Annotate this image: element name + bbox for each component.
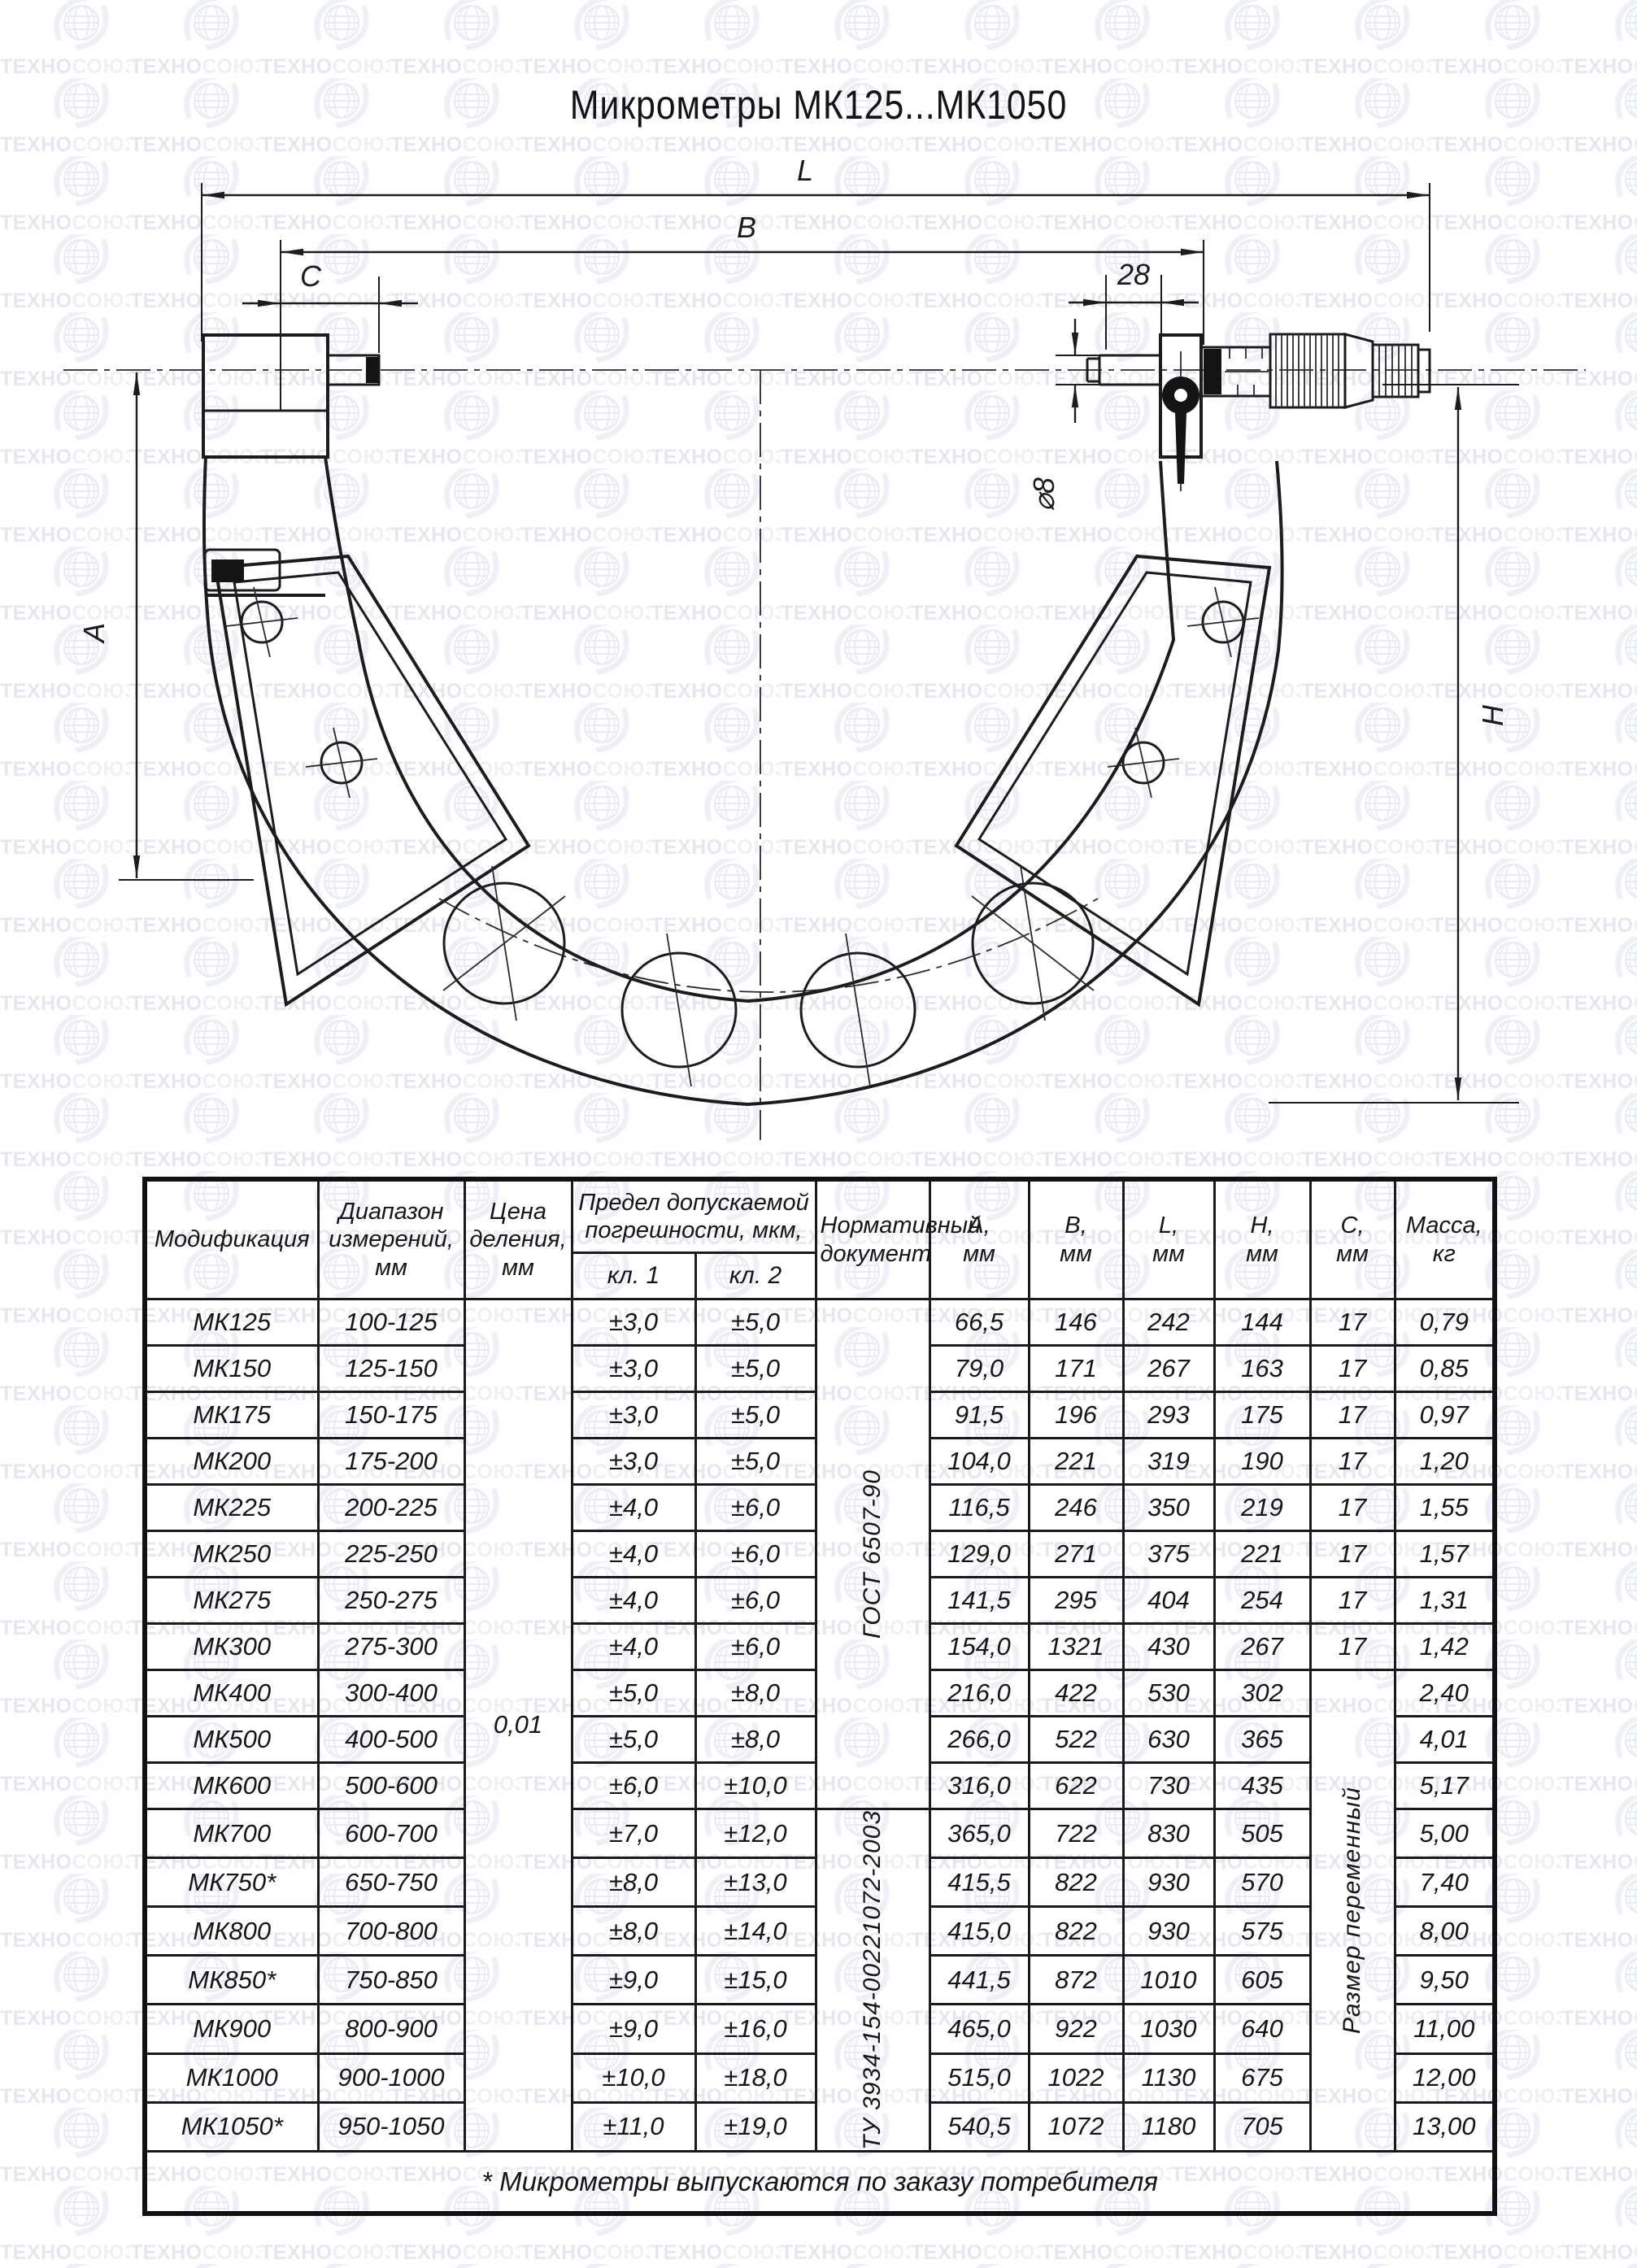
cell-range: 125-150 [318, 1346, 464, 1392]
header-range: Диапазон измерений, мм [318, 1179, 464, 1299]
cell-a: 91,5 [930, 1392, 1029, 1439]
header-c: С, мм [1310, 1179, 1395, 1299]
anvil [203, 335, 379, 457]
cell-a: 116,5 [930, 1485, 1029, 1531]
micrometer-head [1087, 334, 1430, 498]
spec-table-body: МК125100-1250,01±3,0±5,0ГОСТ 6507-9066,5… [145, 1299, 1495, 2152]
dim-label-H: H [1476, 704, 1509, 726]
cell-range: 750-850 [318, 1956, 464, 2005]
cell-kl1: ±3,0 [572, 1439, 695, 1485]
cell-b: 246 [1029, 1485, 1123, 1531]
cell-kl1: ±5,0 [572, 1717, 695, 1763]
cell-kl1: ±10,0 [572, 2053, 695, 2102]
cell-h: 144 [1214, 1299, 1310, 1346]
spec-table-header: Модификация Диапазон измерений, мм Цена … [145, 1179, 1495, 1299]
cell-model: МК850* [145, 1956, 318, 2005]
cell-kl1: ±3,0 [572, 1299, 695, 1346]
cell-b: 622 [1029, 1763, 1123, 1809]
cell-mass: 1,57 [1395, 1531, 1495, 1578]
cell-range: 600-700 [318, 1809, 464, 1858]
header-b: В, мм [1029, 1179, 1123, 1299]
cell-l: 1180 [1123, 2102, 1214, 2151]
cell-b: 171 [1029, 1346, 1123, 1392]
table-row: МК700600-700±7,0±12,0ТУ 3934-154-0022107… [145, 1809, 1495, 1858]
cell-l: 830 [1123, 1809, 1214, 1858]
cell-a: 266,0 [930, 1717, 1029, 1763]
cell-a: 104,0 [930, 1439, 1029, 1485]
cell-l: 375 [1123, 1531, 1214, 1578]
cell-h: 365 [1214, 1717, 1310, 1763]
cell-c: 17 [1310, 1531, 1395, 1578]
cell-a: 415,5 [930, 1858, 1029, 1907]
cell-kl1: ±5,0 [572, 1670, 695, 1717]
cell-kl1: ±11,0 [572, 2102, 695, 2151]
cell-mass: 0,79 [1395, 1299, 1495, 1346]
screw-icon [306, 728, 377, 798]
cell-mass: 1,55 [1395, 1485, 1495, 1531]
table-row: МК125100-1250,01±3,0±5,0ГОСТ 6507-9066,5… [145, 1299, 1495, 1346]
cell-mass: 2,40 [1395, 1670, 1495, 1717]
cell-kl1: ±7,0 [572, 1809, 695, 1858]
header-division: Цена деления, мм [464, 1179, 572, 1299]
cell-doc-tu: ТУ 3934-154-00221072-2003 [816, 1809, 930, 2152]
table-footnote: * Микрометры выпускаются по заказу потре… [145, 2151, 1495, 2214]
cell-model: МК200 [145, 1439, 318, 1485]
cell-mass: 1,31 [1395, 1578, 1495, 1624]
cell-c: 17 [1310, 1299, 1395, 1346]
cell-l: 242 [1123, 1299, 1214, 1346]
cell-kl2: ±5,0 [695, 1346, 816, 1392]
cell-kl2: ±13,0 [695, 1858, 816, 1907]
cell-l: 1030 [1123, 2005, 1214, 2053]
cell-l: 1130 [1123, 2053, 1214, 2102]
page-title: Микрометры МК125...МК1050 [115, 81, 1522, 128]
cell-kl1: ±3,0 [572, 1392, 695, 1439]
header-h: Н, мм [1214, 1179, 1310, 1299]
cell-model: МК250 [145, 1531, 318, 1578]
cell-mass: 12,00 [1395, 2053, 1495, 2102]
cell-range: 500-600 [318, 1763, 464, 1809]
cell-kl2: ±6,0 [695, 1485, 816, 1531]
cell-h: 163 [1214, 1346, 1310, 1392]
cell-h: 175 [1214, 1392, 1310, 1439]
cell-model: МК400 [145, 1670, 318, 1717]
header-model: Модификация [145, 1179, 318, 1299]
dim-label-C: C [300, 259, 322, 293]
cell-l: 430 [1123, 1624, 1214, 1670]
cell-range: 200-225 [318, 1485, 464, 1531]
cell-range: 150-175 [318, 1392, 464, 1439]
cell-mass: 0,85 [1395, 1346, 1495, 1392]
cell-h: 254 [1214, 1578, 1310, 1624]
cell-l: 530 [1123, 1670, 1214, 1717]
cell-h: 575 [1214, 1907, 1310, 1956]
cell-b: 722 [1029, 1809, 1123, 1858]
dimension-L: L [202, 154, 1430, 342]
dim-label-L: L [797, 154, 813, 187]
cell-kl1: ±9,0 [572, 1956, 695, 2005]
dim-label-B: B [737, 211, 756, 244]
cell-kl1: ±6,0 [572, 1763, 695, 1809]
cell-range: 950-1050 [318, 2102, 464, 2151]
cell-h: 302 [1214, 1670, 1310, 1717]
cell-kl2: ±15,0 [695, 1956, 816, 2005]
frame-outline [204, 455, 1282, 1104]
cell-a: 465,0 [930, 2005, 1029, 2053]
cell-mass: 0,97 [1395, 1392, 1495, 1439]
cell-range: 300-400 [318, 1670, 464, 1717]
cell-range: 800-900 [318, 2005, 464, 2053]
cell-model: МК125 [145, 1299, 318, 1346]
header-mass: Масса, кг [1395, 1179, 1495, 1299]
cell-model: МК600 [145, 1763, 318, 1809]
cell-l: 630 [1123, 1717, 1214, 1763]
header-a: А, мм [930, 1179, 1029, 1299]
cell-range: 650-750 [318, 1858, 464, 1907]
cell-h: 505 [1214, 1809, 1310, 1858]
cell-c: 17 [1310, 1346, 1395, 1392]
cell-mass: 1,42 [1395, 1624, 1495, 1670]
header-error: Предел допускаемой погрешности, мкм, [572, 1179, 816, 1253]
cell-kl1: ±8,0 [572, 1907, 695, 1956]
header-kl1: кл. 1 [572, 1253, 695, 1299]
cell-h: 605 [1214, 1956, 1310, 2005]
cell-a: 66,5 [930, 1299, 1029, 1346]
cell-model: МК700 [145, 1809, 318, 1858]
cell-b: 1321 [1029, 1624, 1123, 1670]
cell-c: 17 [1310, 1485, 1395, 1531]
cell-h: 435 [1214, 1763, 1310, 1809]
cell-kl2: ±14,0 [695, 1907, 816, 1956]
cell-mass: 8,00 [1395, 1907, 1495, 1956]
cell-a: 154,0 [930, 1624, 1029, 1670]
cell-range: 400-500 [318, 1717, 464, 1763]
cell-h: 675 [1214, 2053, 1310, 2102]
cell-l: 293 [1123, 1392, 1214, 1439]
cell-kl1: ±4,0 [572, 1624, 695, 1670]
cell-b: 271 [1029, 1531, 1123, 1578]
cell-model: МК300 [145, 1624, 318, 1670]
cell-b: 872 [1029, 1956, 1123, 2005]
cell-kl1: ±4,0 [572, 1485, 695, 1531]
cell-a: 141,5 [930, 1578, 1029, 1624]
cell-model: МК500 [145, 1717, 318, 1763]
cell-a: 316,0 [930, 1763, 1029, 1809]
cell-b: 146 [1029, 1299, 1123, 1346]
cell-model: МК1050* [145, 2102, 318, 2151]
clamp-lever-icon [1162, 351, 1199, 498]
cell-model: МК750* [145, 1858, 318, 1907]
cell-kl2: ±5,0 [695, 1439, 816, 1485]
cell-range: 250-275 [318, 1578, 464, 1624]
cell-mass: 5,00 [1395, 1809, 1495, 1858]
thimble [1270, 334, 1345, 407]
cell-mass: 13,00 [1395, 2102, 1495, 2151]
cell-kl2: ±6,0 [695, 1531, 816, 1578]
cell-doc-gost: ГОСТ 6507-90 [816, 1299, 930, 1809]
header-doc: Нормативный документ [816, 1179, 930, 1299]
cell-kl1: ±4,0 [572, 1531, 695, 1578]
ratchet [1345, 334, 1430, 407]
dimension-B: B [281, 211, 1204, 411]
dim-label-A: A [77, 623, 111, 644]
cell-range: 275-300 [318, 1624, 464, 1670]
cell-kl2: ±5,0 [695, 1299, 816, 1346]
brand-tag-icon [205, 550, 325, 595]
cell-model: МК150 [145, 1346, 318, 1392]
cell-h: 705 [1214, 2102, 1310, 2151]
cell-b: 822 [1029, 1907, 1123, 1956]
dimension-H: H [1269, 385, 1519, 1103]
cell-b: 522 [1029, 1717, 1123, 1763]
cell-range: 100-125 [318, 1299, 464, 1346]
dimension-C: C [242, 259, 418, 353]
cell-b: 1072 [1029, 2102, 1123, 2151]
cell-model: МК800 [145, 1907, 318, 1956]
cell-a: 441,5 [930, 1956, 1029, 2005]
cell-c: 17 [1310, 1439, 1395, 1485]
cell-kl2: ±16,0 [695, 2005, 816, 2053]
cell-mass: 11,00 [1395, 2005, 1495, 2053]
cell-l: 319 [1123, 1439, 1214, 1485]
cell-h: 219 [1214, 1485, 1310, 1531]
cell-c-variable: Размер переменный [1310, 1670, 1395, 2152]
cell-c: 17 [1310, 1624, 1395, 1670]
insulation-plate-left [205, 550, 529, 1004]
cell-kl2: ±8,0 [695, 1717, 816, 1763]
cell-kl2: ±12,0 [695, 1809, 816, 1858]
cell-model: МК900 [145, 2005, 318, 2053]
spec-table-wrap: Модификация Диапазон измерений, мм Цена … [142, 1177, 1497, 2216]
datasheet-page: ТЕХНОСОЮЗ ® Микрометры МК125...МК1050 [0, 0, 1637, 2268]
cell-c: 17 [1310, 1392, 1395, 1439]
cell-l: 350 [1123, 1485, 1214, 1531]
cell-kl1: ±4,0 [572, 1578, 695, 1624]
cell-b: 822 [1029, 1858, 1123, 1907]
cell-model: МК1000 [145, 2053, 318, 2102]
cell-l: 730 [1123, 1763, 1214, 1809]
cell-kl1: ±9,0 [572, 2005, 695, 2053]
cell-b: 922 [1029, 2005, 1123, 2053]
cell-b: 295 [1029, 1578, 1123, 1624]
cell-mass: 4,01 [1395, 1717, 1495, 1763]
cell-a: 79,0 [930, 1346, 1029, 1392]
cell-model: МК275 [145, 1578, 318, 1624]
cell-mass: 9,50 [1395, 1956, 1495, 2005]
center-lines [63, 370, 1586, 1140]
cell-b: 221 [1029, 1439, 1123, 1485]
cell-a: 129,0 [930, 1531, 1029, 1578]
cell-mass: 5,17 [1395, 1763, 1495, 1809]
micrometer-drawing: L B C [0, 146, 1637, 1147]
cell-a: 540,5 [930, 2102, 1029, 2151]
cell-division-merged: 0,01 [464, 1299, 572, 2152]
cell-l: 267 [1123, 1346, 1214, 1392]
cell-mass: 7,40 [1395, 1858, 1495, 1907]
cell-h: 190 [1214, 1439, 1310, 1485]
cell-kl2: ±8,0 [695, 1670, 816, 1717]
dim-label-28: 28 [1117, 258, 1150, 291]
cell-h: 640 [1214, 2005, 1310, 2053]
cell-l: 404 [1123, 1578, 1214, 1624]
cell-range: 900-1000 [318, 2053, 464, 2102]
cell-range: 700-800 [318, 1907, 464, 1956]
cell-l: 930 [1123, 1907, 1214, 1956]
cell-h: 570 [1214, 1858, 1310, 1907]
cell-l: 1010 [1123, 1956, 1214, 2005]
cell-kl2: ±10,0 [695, 1763, 816, 1809]
cell-l: 930 [1123, 1858, 1214, 1907]
cell-kl2: ±6,0 [695, 1624, 816, 1670]
dim-label-dia8: ⌀8 [1027, 477, 1060, 511]
cell-range: 175-200 [318, 1439, 464, 1485]
cell-kl2: ±18,0 [695, 2053, 816, 2102]
cell-a: 515,0 [930, 2053, 1029, 2102]
cell-kl1: ±3,0 [572, 1346, 695, 1392]
cell-kl2: ±19,0 [695, 2102, 816, 2151]
cell-range: 225-250 [318, 1531, 464, 1578]
barrel [1201, 347, 1270, 396]
cell-b: 422 [1029, 1670, 1123, 1717]
insulation-plate-right [956, 556, 1269, 1004]
header-l: L, мм [1123, 1179, 1214, 1299]
cell-a: 365,0 [930, 1809, 1029, 1858]
header-kl2: кл. 2 [695, 1253, 816, 1299]
cell-kl2: ±5,0 [695, 1392, 816, 1439]
cell-kl1: ±8,0 [572, 1858, 695, 1907]
spec-table: Модификация Диапазон измерений, мм Цена … [142, 1177, 1497, 2216]
cell-a: 415,0 [930, 1907, 1029, 1956]
cell-a: 216,0 [930, 1670, 1029, 1717]
cell-kl2: ±6,0 [695, 1578, 816, 1624]
frame-holes [439, 866, 1098, 1086]
cell-h: 221 [1214, 1531, 1310, 1578]
dimension-dia8: ⌀8 [1027, 319, 1099, 511]
cell-c: 17 [1310, 1578, 1395, 1624]
cell-model: МК175 [145, 1392, 318, 1439]
cell-mass: 1,20 [1395, 1439, 1495, 1485]
cell-b: 196 [1029, 1392, 1123, 1439]
cell-model: МК225 [145, 1485, 318, 1531]
cell-b: 1022 [1029, 2053, 1123, 2102]
cell-h: 267 [1214, 1624, 1310, 1670]
